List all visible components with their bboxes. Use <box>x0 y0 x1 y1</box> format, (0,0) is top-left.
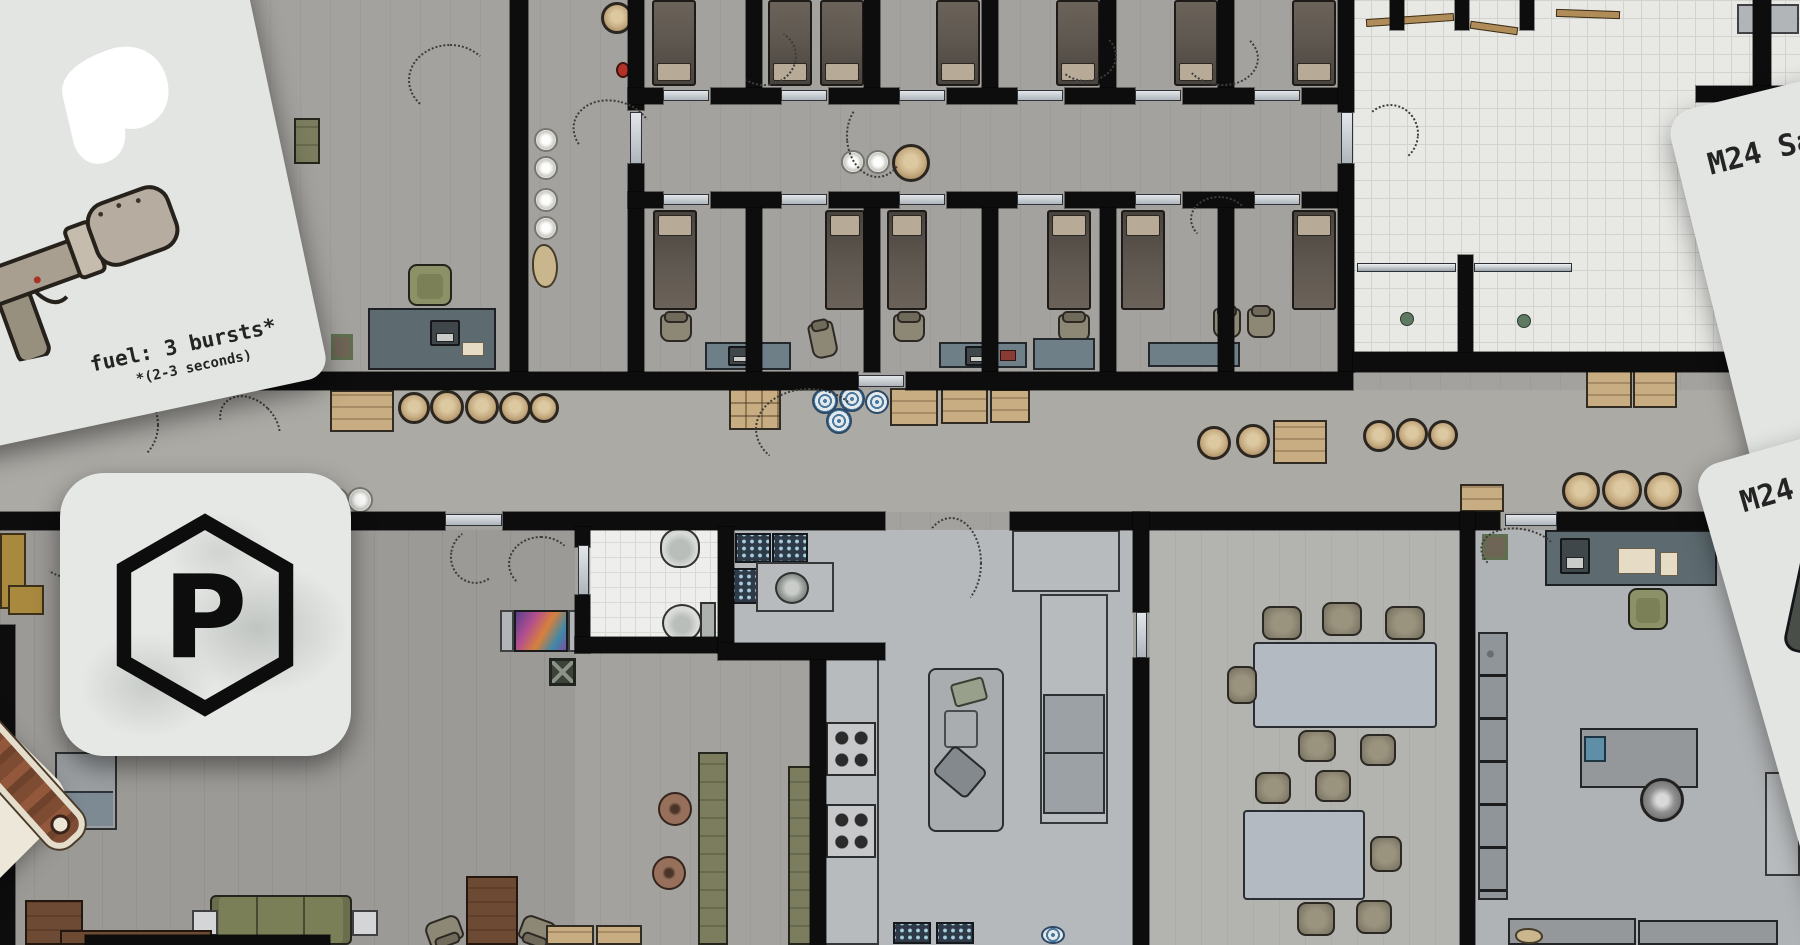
wall <box>1183 88 1254 104</box>
chair <box>660 314 692 342</box>
stool <box>1315 770 1351 802</box>
stove <box>826 722 876 776</box>
wall <box>982 208 998 372</box>
plate <box>534 188 558 212</box>
paper <box>1660 552 1678 576</box>
bed <box>936 0 980 86</box>
bed <box>1121 210 1165 310</box>
plate <box>534 156 558 180</box>
grenade-illustration <box>1782 545 1800 662</box>
wall <box>1302 88 1338 104</box>
door <box>1017 90 1063 101</box>
wall <box>1520 0 1534 30</box>
stool <box>1297 902 1335 936</box>
arc <box>508 536 574 592</box>
barrel <box>465 390 499 424</box>
crate <box>890 388 938 426</box>
wall <box>1455 0 1469 30</box>
wall <box>947 192 1017 208</box>
stool <box>1360 734 1396 766</box>
paper <box>1618 548 1656 574</box>
bench <box>294 118 320 164</box>
wall <box>718 527 734 653</box>
plate <box>534 128 558 152</box>
tv <box>514 610 568 652</box>
wtable <box>1638 920 1778 945</box>
arc <box>1055 30 1117 82</box>
wall <box>711 192 781 208</box>
wall <box>982 0 998 88</box>
door <box>578 545 589 595</box>
bplate <box>865 390 889 414</box>
sack <box>1515 928 1543 944</box>
crate <box>1460 484 1504 512</box>
sack <box>532 244 558 288</box>
bed <box>1292 210 1336 310</box>
slab <box>500 610 514 652</box>
wall <box>906 372 1353 390</box>
door <box>899 194 945 205</box>
barrel <box>1602 470 1642 510</box>
gchair <box>1628 588 1668 630</box>
arc <box>920 517 982 609</box>
bed <box>652 0 696 86</box>
rack <box>936 922 974 944</box>
barrel <box>499 392 531 424</box>
stool <box>1370 836 1402 872</box>
wall <box>1133 512 1149 612</box>
m24-top-title: M24 Sa <box>1704 122 1800 182</box>
barrel <box>398 392 430 424</box>
chair <box>807 320 840 361</box>
door <box>1341 112 1353 164</box>
typewriter <box>430 320 460 346</box>
door <box>1505 514 1557 526</box>
grayboard <box>944 710 978 748</box>
gchair <box>408 264 452 306</box>
counter <box>823 658 879 945</box>
fridge <box>1043 694 1105 814</box>
door <box>663 90 709 101</box>
pouf <box>652 856 686 890</box>
wall <box>1338 0 1354 112</box>
wall <box>85 935 330 945</box>
table <box>1243 810 1365 900</box>
bed <box>653 210 697 310</box>
battlemap: fuel: 3 bursts* *(2-3 seconds) P M24 Sa … <box>0 0 1800 945</box>
wall <box>1460 512 1475 945</box>
door <box>1017 194 1063 205</box>
wall <box>503 512 885 530</box>
wall <box>1753 0 1771 92</box>
m24-bottom-title: M24 <box>1736 472 1798 521</box>
barrel <box>1396 418 1428 450</box>
frame2 <box>549 658 576 686</box>
drain <box>1400 312 1414 326</box>
door <box>1254 90 1300 101</box>
keg <box>1197 426 1231 460</box>
barrel <box>430 390 464 424</box>
barrel <box>1363 420 1395 452</box>
hexagon-logo-icon: P <box>94 501 316 729</box>
wall <box>810 660 826 945</box>
frame <box>331 334 353 360</box>
rail <box>1474 263 1572 272</box>
door <box>445 514 502 526</box>
pot <box>775 572 809 604</box>
door <box>1136 612 1147 658</box>
door <box>1135 194 1181 205</box>
bplate <box>1041 926 1065 944</box>
wall <box>829 192 899 208</box>
door <box>781 194 827 205</box>
arc <box>408 44 492 116</box>
crate <box>546 925 594 945</box>
keg <box>1236 424 1270 458</box>
wall <box>1065 192 1135 208</box>
paper <box>462 342 484 356</box>
wall <box>575 637 723 653</box>
sink <box>660 528 700 568</box>
pouf <box>658 792 692 826</box>
crate <box>330 390 394 432</box>
wall <box>947 88 1017 104</box>
blue <box>1584 736 1606 762</box>
wall <box>746 208 762 372</box>
stove <box>826 804 876 858</box>
bed <box>887 210 927 310</box>
bed <box>1292 0 1336 86</box>
drain <box>1517 314 1531 328</box>
wall <box>510 0 528 372</box>
crate <box>941 388 988 424</box>
wall <box>1302 192 1338 208</box>
stool <box>1385 606 1425 640</box>
stool <box>1322 602 1362 636</box>
bed <box>825 210 865 310</box>
sidetable <box>352 910 378 936</box>
wall <box>1338 164 1354 372</box>
book <box>1000 350 1016 361</box>
wall <box>711 88 781 104</box>
stool <box>1356 900 1392 934</box>
stool <box>1262 606 1302 640</box>
door <box>858 375 904 387</box>
table <box>1253 642 1437 728</box>
crate <box>1273 420 1327 464</box>
wall <box>1458 255 1473 352</box>
wall <box>864 0 880 88</box>
wall <box>628 192 663 208</box>
wood <box>466 876 518 945</box>
bdesk <box>1033 338 1095 370</box>
wall <box>1390 0 1404 30</box>
crate <box>990 389 1030 423</box>
stool <box>1255 772 1291 804</box>
door <box>1254 194 1300 205</box>
crate <box>596 925 642 945</box>
chair <box>893 314 925 342</box>
tank <box>700 602 716 642</box>
barrel <box>529 393 559 423</box>
counter <box>1012 530 1120 592</box>
door <box>899 90 945 101</box>
door <box>663 194 709 205</box>
stool <box>1227 666 1257 704</box>
bed <box>820 0 864 86</box>
wall <box>1065 88 1135 104</box>
bed <box>1047 210 1091 310</box>
logo-letter: P <box>163 551 248 685</box>
chair <box>1247 308 1275 338</box>
wall <box>718 643 885 660</box>
wall <box>575 527 590 547</box>
plate <box>347 487 373 513</box>
rack <box>735 533 771 563</box>
wall <box>1100 208 1116 372</box>
plate <box>534 216 558 240</box>
rack <box>772 533 808 563</box>
shelf <box>1478 632 1508 900</box>
wall <box>864 208 880 372</box>
typewriter <box>1560 538 1590 574</box>
barrel <box>1428 420 1458 450</box>
wall <box>1133 658 1149 945</box>
patreon-creator-logo-card: P <box>60 473 351 756</box>
machine <box>1640 778 1684 822</box>
wall <box>1010 512 1500 530</box>
rail <box>1357 263 1456 272</box>
door <box>1135 90 1181 101</box>
arc <box>755 388 863 470</box>
barrel <box>1644 472 1682 510</box>
barrel <box>1562 472 1600 510</box>
door <box>781 90 827 101</box>
bench <box>698 752 728 945</box>
stool <box>1298 730 1336 762</box>
wall <box>628 88 663 104</box>
rack <box>893 922 931 944</box>
ycrate <box>8 585 44 615</box>
